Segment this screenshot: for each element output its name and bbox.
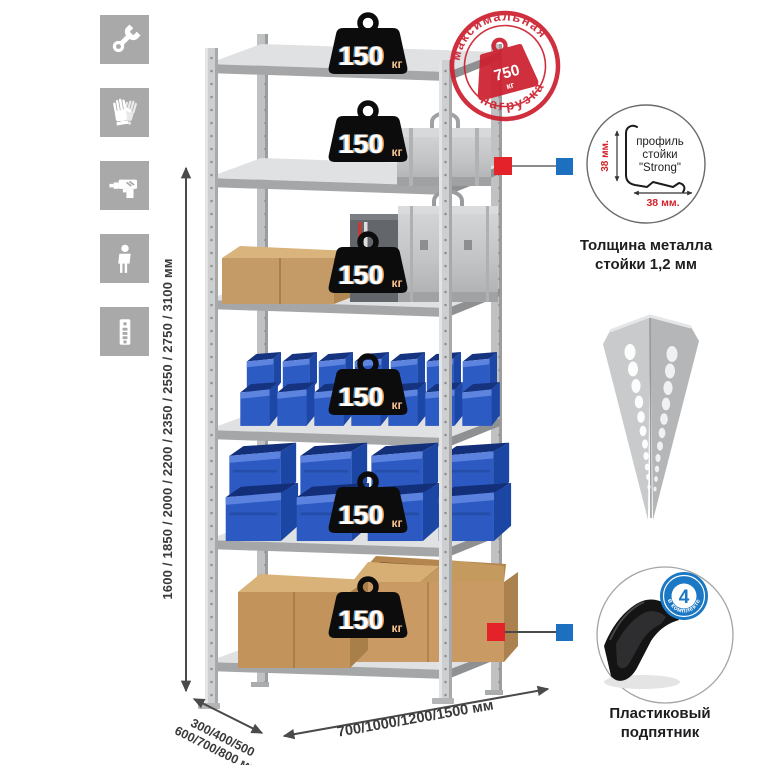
svg-text:4: 4	[679, 587, 690, 608]
svg-text:профиль: профиль	[636, 136, 684, 148]
profile-horizontal-dim: 38 мм.	[646, 197, 679, 209]
profile-caption-line2: стойки 1,2 мм	[556, 255, 736, 274]
profile-callout-connector	[494, 157, 573, 175]
foot-callout-connector	[487, 623, 573, 641]
svg-text:"Strong": "Strong"	[639, 162, 681, 174]
corner-post-image	[603, 316, 699, 520]
svg-text:150: 150	[338, 260, 383, 290]
height-dimension: 1600 / 1850 / 2000 / 2200 / 2350 / 2550 …	[160, 168, 186, 691]
foot-caption-line1: Пластиковый	[570, 704, 750, 723]
weight-badge-2: 150 150 150 кг	[329, 103, 408, 162]
svg-text:150: 150	[338, 41, 383, 71]
foot-caption: Пластиковый подпятник	[570, 704, 750, 742]
scene: 1600 / 1850 / 2000 / 2200 / 2350 / 2550 …	[0, 0, 765, 765]
svg-text:150: 150	[338, 382, 383, 412]
svg-text:кг: кг	[391, 516, 402, 530]
svg-text:150: 150	[338, 500, 383, 530]
foot-detail: 4 в комплекте	[597, 567, 733, 703]
width-dimension: 700/1000/1200/1500 мм	[284, 689, 548, 741]
profile-detail: 38 мм. 38 мм. профиль стойки "Strong"	[587, 105, 705, 223]
svg-text:150: 150	[338, 129, 383, 159]
profile-caption-line1: Толщина металла	[556, 236, 736, 255]
svg-text:кг: кг	[391, 398, 402, 412]
svg-text:150: 150	[338, 605, 383, 635]
weight-badge-1: 150 150 150 кг	[329, 15, 408, 74]
svg-text:кг: кг	[391, 145, 402, 159]
svg-text:кг: кг	[391, 57, 402, 71]
profile-vertical-dim: 38 мм.	[600, 140, 611, 172]
svg-text:кг: кг	[391, 621, 402, 635]
profile-caption: Толщина металла стойки 1,2 мм	[556, 236, 736, 274]
svg-text:стойки: стойки	[642, 149, 677, 161]
depth-dimension: 300/400/500 600/700/800 мм	[172, 699, 266, 765]
kit-count-badge: 4 в комплекте	[660, 572, 708, 620]
svg-text:кг: кг	[391, 276, 402, 290]
width-dimension-label: 700/1000/1200/1500 мм	[336, 697, 495, 740]
foot-caption-line2: подпятник	[570, 723, 750, 742]
shelving-infographic: 1600 / 1850 / 2000 / 2200 / 2350 / 2550 …	[0, 0, 765, 765]
height-dimension-label: 1600 / 1850 / 2000 / 2200 / 2350 / 2550 …	[160, 258, 175, 599]
